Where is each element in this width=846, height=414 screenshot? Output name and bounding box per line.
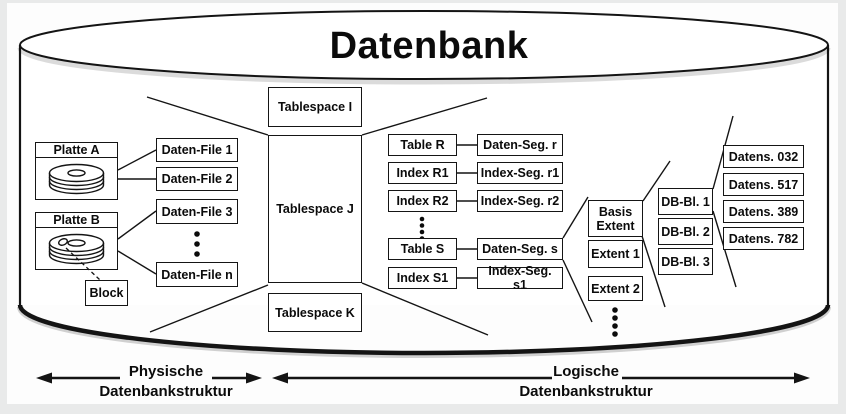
index-segment-r2-box: Index-Seg. r2 xyxy=(477,190,563,212)
index-r1-box: Index R1 xyxy=(388,162,457,184)
index-segment-r1-box: Index-Seg. r1 xyxy=(477,162,563,184)
database-title: Datenbank xyxy=(279,25,579,68)
data-file-2-box: Daten-File 2 xyxy=(156,167,238,191)
data-file-1-box: Daten-File 1 xyxy=(156,138,238,162)
record-032-box: Datens. 032 xyxy=(723,145,804,168)
disk-a-label: Platte A xyxy=(36,143,117,158)
data-segment-s-box: Daten-Seg. s xyxy=(477,238,563,260)
db-block-3-box: DB-Bl. 3 xyxy=(658,248,713,275)
data-segment-r-box: Daten-Seg. r xyxy=(477,134,563,156)
disk-b-box: Platte B xyxy=(35,212,118,270)
logical-structure-label: Logische Datenbankstruktur xyxy=(496,362,676,402)
index-segment-s1-box: Index-Seg. s1 xyxy=(477,267,563,289)
data-file-n-box: Daten-File n xyxy=(156,262,238,287)
ellipsis-dots-extents xyxy=(612,307,618,337)
physical-structure-label: Physische Datenbankstruktur xyxy=(96,362,236,402)
extent-2-box: Extent 2 xyxy=(588,276,643,301)
logical-structure-line1: Logische xyxy=(496,362,676,382)
record-782-box: Datens. 782 xyxy=(723,227,804,250)
tablespace-i-box: Tablespace I xyxy=(268,87,362,127)
index-s1-box: Index S1 xyxy=(388,267,457,289)
frame-left xyxy=(0,0,7,414)
extent-1-box: Extent 1 xyxy=(588,240,643,268)
index-r2-box: Index R2 xyxy=(388,190,457,212)
logical-structure-line2: Datenbankstruktur xyxy=(496,382,676,402)
diagram-canvas: Datenbank Platte A Platte B Block Daten-… xyxy=(0,0,846,414)
record-517-box: Datens. 517 xyxy=(723,173,804,196)
block-box: Block xyxy=(85,280,128,306)
disk-b-label: Platte B xyxy=(36,213,117,228)
physical-structure-line1: Physische xyxy=(96,362,236,382)
tablespace-j-box: Tablespace J xyxy=(268,135,362,283)
frame-bottom xyxy=(0,404,846,414)
record-389-box: Datens. 389 xyxy=(723,200,804,223)
table-s-box: Table S xyxy=(388,238,457,260)
db-block-2-box: DB-Bl. 2 xyxy=(658,218,713,245)
table-r-box: Table R xyxy=(388,134,457,156)
ellipsis-dots-files xyxy=(194,231,200,257)
basis-extent-box: Basis Extent xyxy=(588,200,643,237)
tablespace-k-box: Tablespace K xyxy=(268,293,362,332)
db-block-1-box: DB-Bl. 1 xyxy=(658,188,713,215)
frame-right xyxy=(838,0,846,414)
data-file-3-box: Daten-File 3 xyxy=(156,199,238,224)
physical-structure-line2: Datenbankstruktur xyxy=(96,382,236,402)
frame-top xyxy=(0,0,846,3)
disk-a-box: Platte A xyxy=(35,142,118,200)
